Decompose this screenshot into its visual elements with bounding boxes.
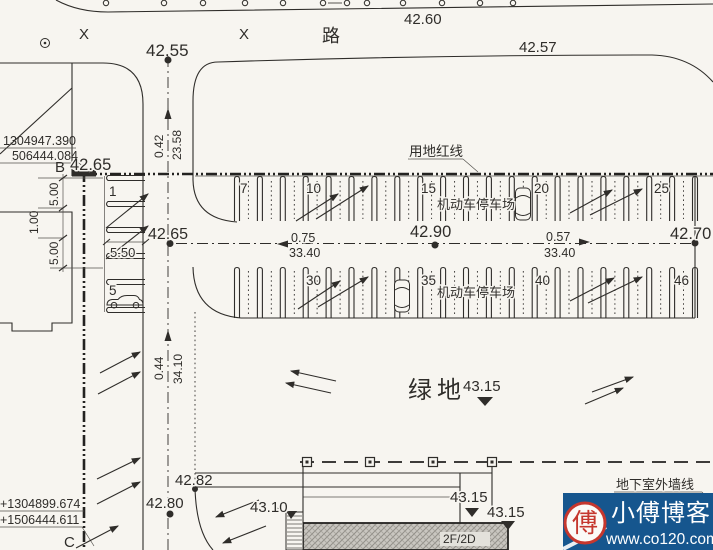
dim-aisle-west-length: 33.40 bbox=[289, 246, 320, 260]
road-marker-circles bbox=[103, 0, 515, 5]
stall-number-1: 1 bbox=[109, 184, 117, 199]
stall-number-20: 20 bbox=[534, 181, 549, 196]
dim-ns-top-grade: 0.42 bbox=[152, 134, 166, 158]
watermark-site-url: www.co120.com bbox=[605, 531, 713, 548]
elevation-triangles bbox=[165, 108, 591, 530]
survey-x-mark: X bbox=[239, 26, 249, 43]
watermark: 傅 小傅博客 www.co120.com bbox=[563, 493, 713, 550]
stall-number-25: 25 bbox=[654, 181, 669, 196]
stall-number-5: 5 bbox=[109, 283, 117, 298]
elev-building-a: 43.15 bbox=[450, 489, 488, 506]
basement-wall-label: 地下室外墙线 bbox=[616, 477, 694, 492]
elev-aisle-mid: 42.90 bbox=[410, 223, 451, 241]
dim-aisle-east-length: 33.40 bbox=[544, 246, 575, 260]
point-c-coord-y: +1506444.611 bbox=[0, 513, 79, 527]
dim-ns-top-length: 23.58 bbox=[170, 130, 184, 160]
point-c-coord-x: +1304899.674 bbox=[0, 497, 80, 511]
stall-number-15: 15 bbox=[421, 181, 436, 196]
watermark-site-name: 小傅博客 bbox=[611, 500, 711, 527]
red-line-label: 用地红线 bbox=[409, 144, 463, 159]
point-c-label: C bbox=[64, 534, 75, 550]
parking-lot-label-bottom: 机动车停车场 bbox=[437, 285, 515, 300]
point-b-coord-y: 506444.084 bbox=[12, 149, 78, 163]
stall-number-35: 35 bbox=[421, 273, 436, 288]
parking-lot-label-top: 机动车停车场 bbox=[437, 197, 515, 212]
stairs bbox=[286, 511, 303, 550]
watermark-stamp-char: 傅 bbox=[572, 508, 598, 538]
west-buildings bbox=[0, 63, 72, 331]
elev-green: 43.15 bbox=[463, 378, 501, 395]
dim-left-1m: 1.00 bbox=[27, 210, 41, 234]
building-floors-label: 2F/2D bbox=[443, 532, 476, 546]
site-plan-scan: 路 42.60 42.57 42.55 X X 用地红线 1 5 7 10 15… bbox=[0, 0, 713, 550]
stall-number-46: 46 bbox=[674, 273, 689, 288]
dim-aisle-west-grade: 0.75 bbox=[291, 231, 315, 245]
dim-left-5m-lower: 5.00 bbox=[47, 241, 61, 265]
survey-x-mark: X bbox=[79, 26, 89, 43]
stall-number-7: 7 bbox=[240, 181, 248, 196]
elev-building-b: 43.15 bbox=[487, 504, 525, 521]
elev-south-b: 42.80 bbox=[146, 495, 184, 512]
dim-stall-depth: 5.50 bbox=[110, 245, 135, 260]
elev-south-c: 43.10 bbox=[250, 499, 288, 516]
road-name: 路 bbox=[322, 26, 340, 46]
car-top-icon bbox=[516, 188, 531, 220]
site-plan-drawing: 路 42.60 42.57 42.55 X X 用地红线 1 5 7 10 15… bbox=[0, 0, 713, 550]
stall-number-40: 40 bbox=[535, 273, 550, 288]
dim-ns-bottom-grade: 0.44 bbox=[152, 356, 166, 380]
dim-left-5m-upper: 5.00 bbox=[47, 182, 61, 206]
stall-number-10: 10 bbox=[306, 181, 321, 196]
dim-aisle-east-grade: 0.57 bbox=[546, 230, 570, 244]
elev-road-right: 42.57 bbox=[519, 39, 557, 56]
car-top-icon bbox=[395, 280, 410, 312]
stall-number-30: 30 bbox=[306, 273, 321, 288]
dim-ns-bottom-length: 34.10 bbox=[171, 354, 185, 384]
elev-road-center: 42.55 bbox=[146, 41, 189, 60]
elev-south-a: 42.82 bbox=[175, 472, 213, 489]
elev-drive-mid: 42.65 bbox=[148, 226, 188, 243]
benchmark-symbol-icon bbox=[41, 39, 50, 48]
elev-aisle-east: 42.70 bbox=[670, 225, 711, 243]
green-space-label: 绿地 bbox=[408, 377, 466, 404]
point-b-coord-x: 1304947.390 bbox=[3, 134, 76, 148]
elev-road-top: 42.60 bbox=[404, 11, 442, 28]
